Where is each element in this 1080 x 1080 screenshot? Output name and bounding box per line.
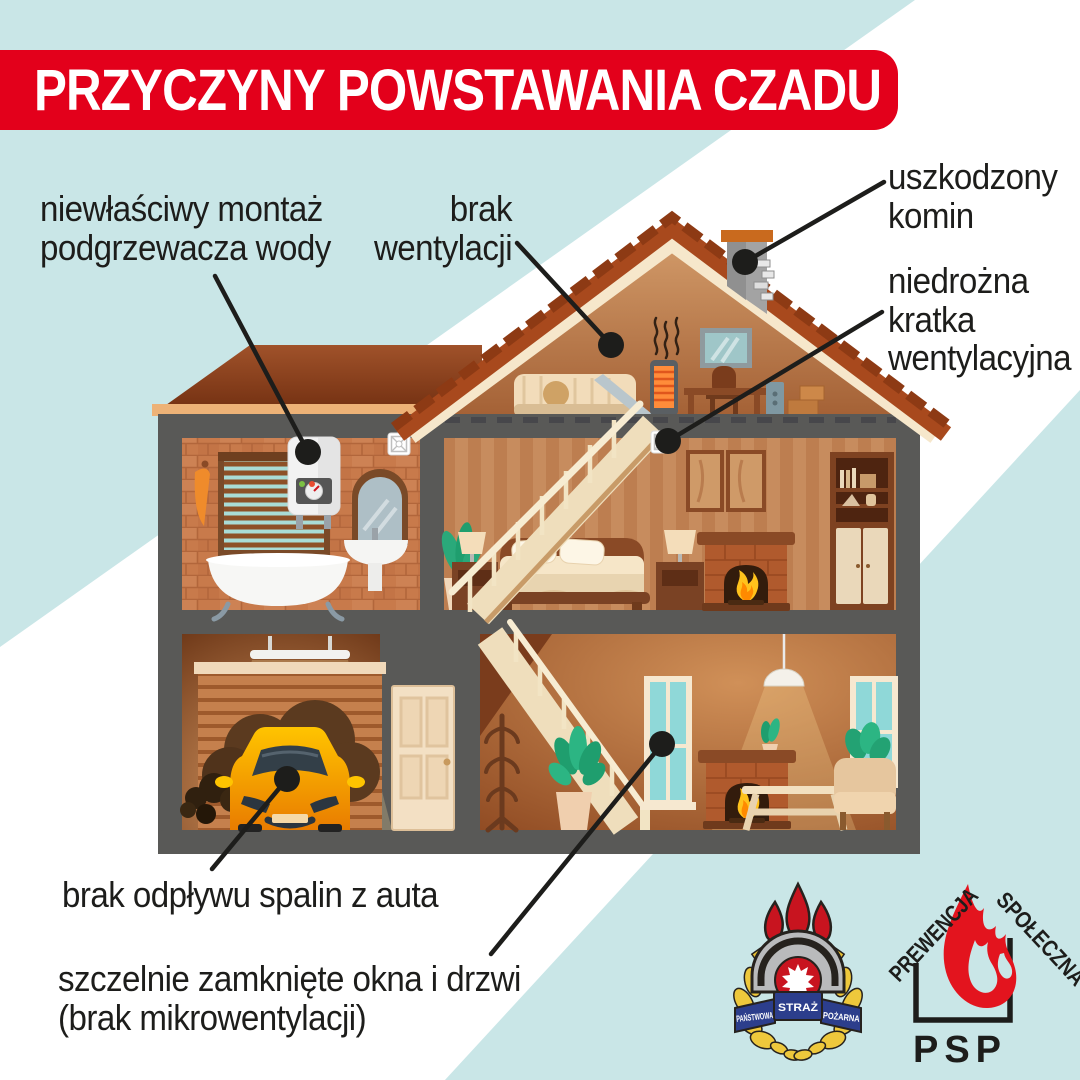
callout-label-ventilation: brak wentylacji [310, 190, 512, 267]
page-title: PRZYCZYNY POWSTAWANIA CZADU [0, 57, 881, 124]
prevention-abbr-text: PSP [913, 1029, 1007, 1071]
garage [180, 634, 392, 832]
prevention-psp-logo: PREWENCJA SPOŁECZNA PSP [884, 882, 1080, 1071]
bathroom-mirror-icon [352, 469, 408, 545]
title-banner: PRZYCZYNY POWSTAWANIA CZADU [0, 50, 898, 130]
attic-window-icon [700, 328, 752, 368]
interior-door-icon [392, 686, 454, 830]
callout-label-vent-grille: niedrożna kratka wentylacyjna [888, 262, 1071, 378]
callout-label-water-heater: niewłaściwy montaż podgrzewacza wody [40, 190, 331, 267]
bedroom-fireplace-icon [697, 532, 795, 611]
callout-label-car-exhaust: brak odpływu spalin z auta [62, 876, 438, 915]
computer-tower-icon [766, 382, 784, 416]
callout-label-chimney: uszkodzony komin [888, 158, 1057, 235]
infographic-poster: PAŃSTWOWA STRAŻ POŻARNA PREWENCJA SPOŁEC… [0, 0, 1080, 1080]
crest-ribbon-center-text: STRAŻ [778, 1001, 818, 1014]
psp-crest-logo: PAŃSTWOWA STRAŻ POŻARNA [730, 884, 867, 1061]
wall-pictures-icon [688, 452, 764, 510]
attic [424, 250, 922, 432]
callout-line-chimney [745, 182, 884, 262]
wardrobe-icon [830, 452, 894, 610]
living-room [480, 622, 898, 830]
electric-heater-icon [650, 360, 678, 416]
callout-label-windows: szczelnie zamknięte okna i drzwi (brak m… [58, 960, 521, 1037]
